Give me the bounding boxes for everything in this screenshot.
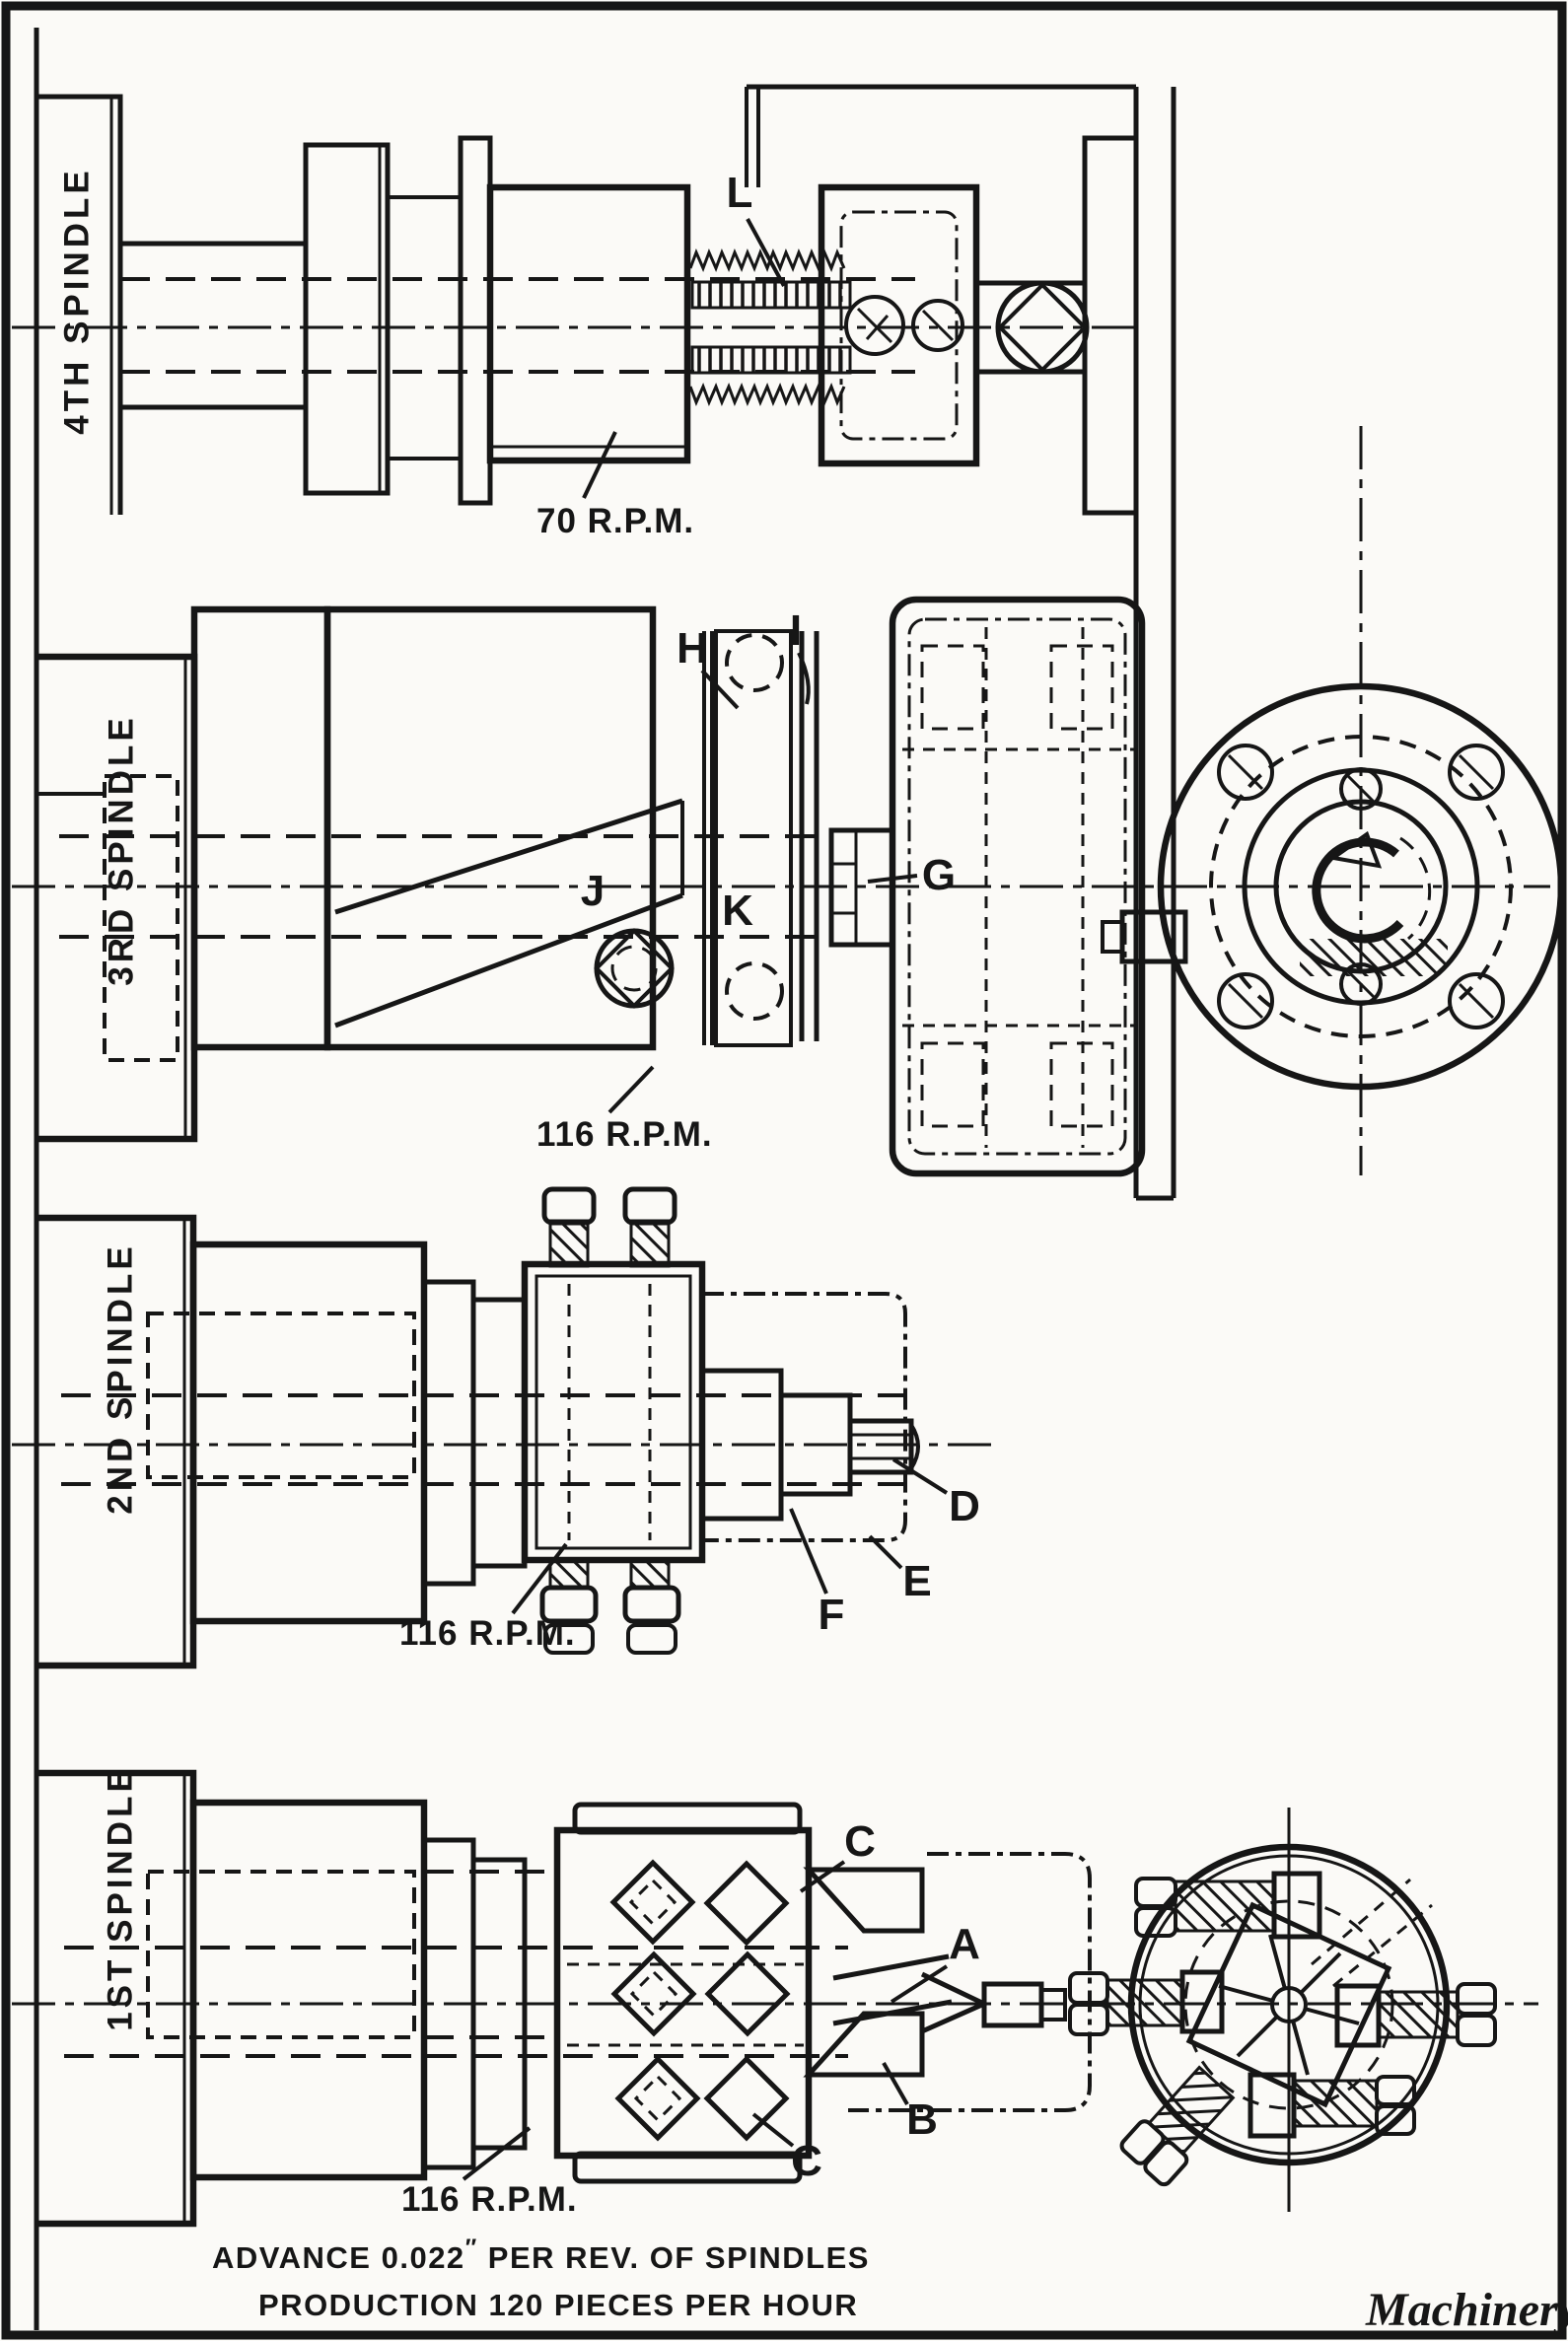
leader-line bbox=[893, 1459, 947, 1493]
callout-letter-e: E bbox=[902, 1557, 931, 1605]
rpm-label-1st: 116 R.P.M. bbox=[401, 2128, 578, 2219]
section-2nd-spindle: 2ND SPINDLE bbox=[12, 1189, 996, 1666]
callout-letter-a: A bbox=[949, 1920, 980, 1968]
callout-letter-f: F bbox=[819, 1591, 845, 1639]
end-view-1st-spindle bbox=[1070, 1808, 1495, 2212]
rpm-label-3rd: 116 R.P.M. bbox=[536, 1067, 713, 1154]
leader-line bbox=[584, 432, 615, 498]
threading-die-4th bbox=[490, 187, 976, 463]
inch-mark: ″ bbox=[465, 2235, 478, 2261]
spindle-head-box-2nd: 2ND SPINDLE bbox=[38, 1218, 193, 1666]
end-view-3rd-spindle bbox=[1161, 426, 1561, 1175]
bolt-nut-icon bbox=[625, 1588, 678, 1621]
callout-letter-h: H bbox=[677, 624, 708, 673]
clamp-screw-hidden-icon bbox=[727, 963, 782, 1019]
box-tool-2nd bbox=[525, 1189, 702, 1653]
clamp-screw-hidden-icon bbox=[727, 635, 782, 690]
publication-credit: Machinery bbox=[1365, 2284, 1568, 2336]
leader-line bbox=[748, 219, 784, 286]
spindle-label-3rd: 3RD SPINDLE bbox=[103, 714, 141, 985]
leader-line bbox=[791, 1509, 826, 1594]
rpm-text-1st: 116 R.P.M. bbox=[401, 2180, 578, 2219]
callout-letter-c-upper: C bbox=[844, 1817, 876, 1866]
cutting-tool-1st bbox=[809, 1854, 1090, 2110]
advance-note-prefix: ADVANCE 0.022 bbox=[212, 2240, 465, 2275]
spindle-head-box-3rd: 3RD SPINDLE bbox=[38, 657, 194, 1139]
bolt-head-icon bbox=[625, 1189, 675, 1223]
cam-bore-detail bbox=[1300, 834, 1448, 976]
square-bolt-head-icon bbox=[613, 1863, 692, 1942]
spindle-head-box-1st: 1ST SPINDLE bbox=[38, 1765, 193, 2224]
leader-line bbox=[609, 1067, 653, 1112]
callout-letter-g: G bbox=[922, 851, 956, 899]
leader-line bbox=[870, 1536, 901, 1568]
section-1st-spindle: 1ST SPINDLE bbox=[12, 1765, 1538, 2224]
section-4th-spindle: 4TH SPINDLE bbox=[12, 87, 1136, 540]
production-note: PRODUCTION 120 PIECES PER HOUR bbox=[258, 2288, 858, 2322]
hollow-mill-2nd bbox=[702, 1294, 918, 1540]
rpm-text-4th: 70 R.P.M. bbox=[536, 502, 694, 540]
square-bolt-head-icon bbox=[708, 1954, 787, 2033]
bolt-locknut-icon bbox=[628, 1625, 676, 1653]
square-bolt-head-icon bbox=[707, 1864, 786, 1943]
tooling-layout-drawing: 4TH SPINDLE bbox=[0, 0, 1568, 2341]
callout-letter-k: K bbox=[722, 887, 753, 935]
clamp-bolt-right bbox=[1337, 1984, 1495, 2045]
square-bolt-head-icon bbox=[618, 2059, 697, 2138]
advance-note: ADVANCE 0.022″ PER REV. OF SPINDLES bbox=[212, 2235, 870, 2275]
square-bolt-head-icon bbox=[707, 2059, 786, 2138]
box-tool-1st bbox=[557, 1805, 809, 2181]
drawing-notes: ADVANCE 0.022″ PER REV. OF SPINDLES PROD… bbox=[212, 2235, 870, 2322]
clamp-bolt-top bbox=[1136, 1874, 1319, 1937]
square-screw-head-icon bbox=[597, 931, 672, 1006]
spindle-label-4th: 4TH SPINDLE bbox=[58, 167, 97, 435]
leader-line bbox=[884, 2063, 907, 2104]
advance-note-suffix: PER REV. OF SPINDLES bbox=[478, 2240, 870, 2275]
rpm-text-3rd: 116 R.P.M. bbox=[536, 1115, 713, 1154]
callout-letter-b: B bbox=[906, 2095, 938, 2144]
callout-letter-l: L bbox=[727, 169, 753, 217]
leader-line bbox=[753, 2114, 793, 2146]
callout-letter-c-lower: C bbox=[791, 2137, 822, 2185]
bolt-head-icon bbox=[544, 1189, 594, 1223]
square-bolt-head-icon bbox=[614, 1954, 693, 2033]
callout-letter-j: J bbox=[581, 867, 605, 915]
callouts-2nd: D E F bbox=[791, 1459, 980, 1639]
callout-letter-i: I bbox=[790, 606, 802, 655]
spindle-label-2nd: 2ND SPINDLE bbox=[102, 1242, 140, 1514]
rpm-text-2nd: 116 R.P.M. bbox=[399, 1614, 576, 1653]
spindle-head-box-4th: 4TH SPINDLE bbox=[36, 97, 120, 515]
spindle-label-1st: 1ST SPINDLE bbox=[102, 1765, 140, 2031]
callout-letter-d: D bbox=[949, 1482, 980, 1530]
